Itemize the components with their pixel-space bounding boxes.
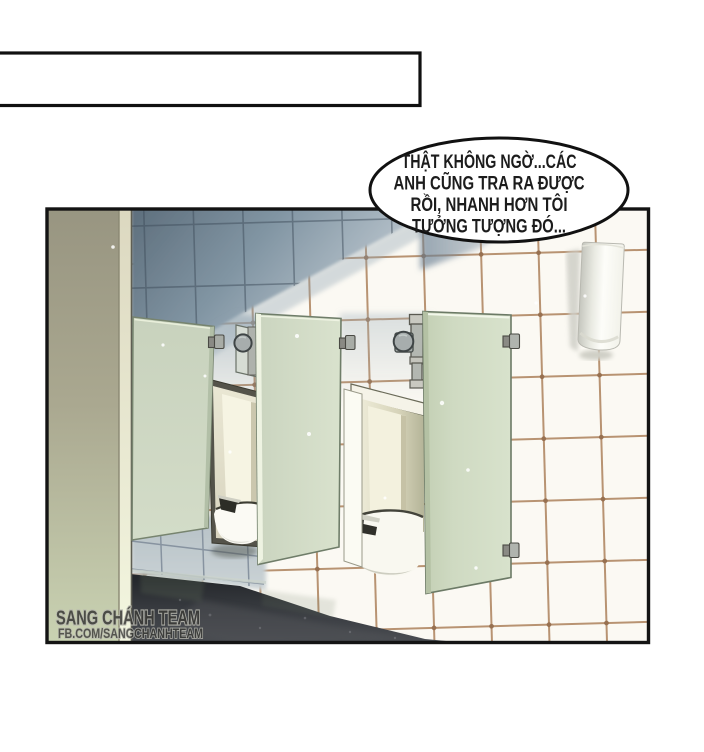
- svg-text:FB.COM/SANGCHANHTEAM: FB.COM/SANGCHANHTEAM: [58, 626, 203, 641]
- svg-text:THẬT KHÔNG NGỜ...CÁC: THẬT KHÔNG NGỜ...CÁC: [402, 151, 577, 173]
- svg-text:TƯỞNG TƯỢNG ĐÓ...: TƯỞNG TƯỢNG ĐÓ...: [412, 216, 566, 238]
- svg-text:RỒI, NHANH HƠN TÔI: RỒI, NHANH HƠN TÔI: [411, 194, 568, 216]
- svg-text:ANH CŨNG TRA RA ĐƯỢC: ANH CŨNG TRA RA ĐƯỢC: [394, 173, 585, 195]
